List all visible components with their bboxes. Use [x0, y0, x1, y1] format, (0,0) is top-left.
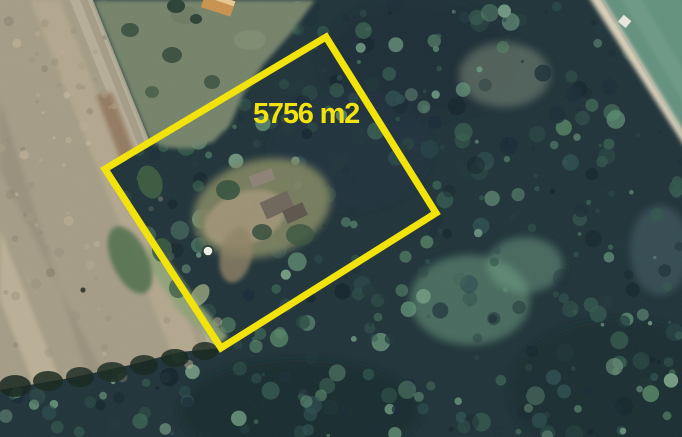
satellite-imagery: 5756 m2: [0, 0, 682, 437]
area-label: 5756 m2: [253, 98, 359, 130]
satellite-map-viewport[interactable]: 5756 m2: [0, 0, 682, 437]
